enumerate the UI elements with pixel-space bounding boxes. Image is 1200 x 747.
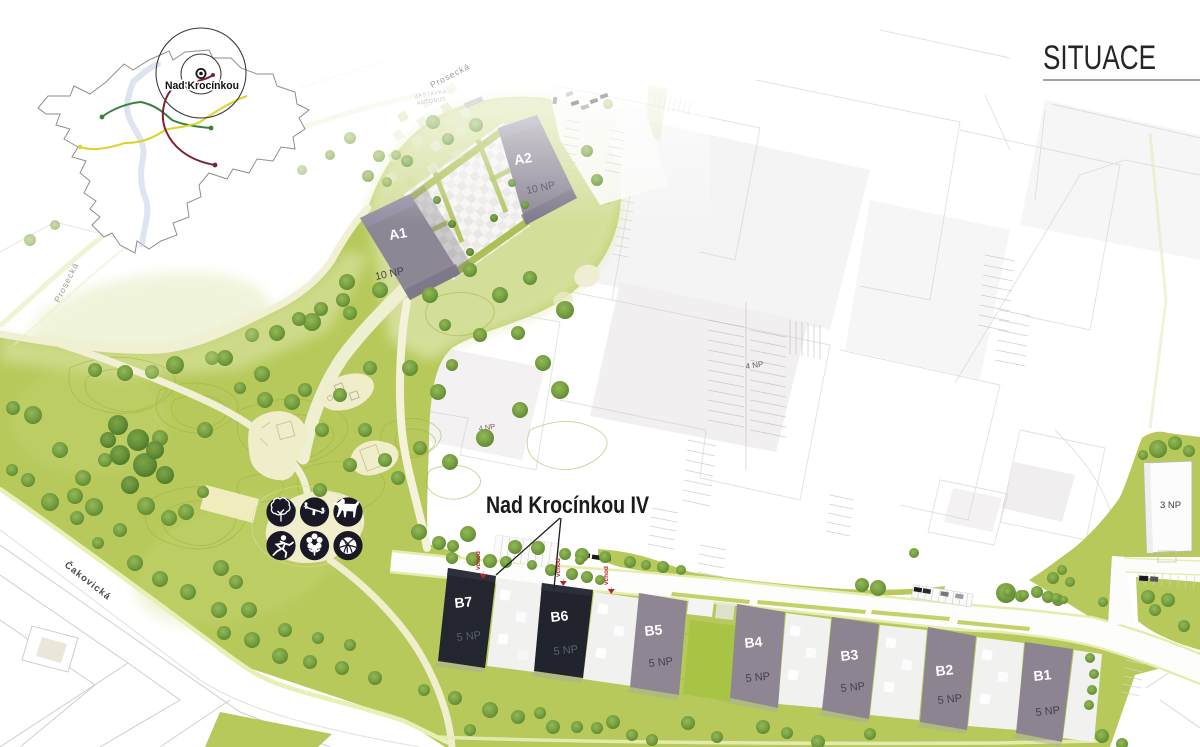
svg-text:5 NP: 5 NP xyxy=(745,670,771,684)
svg-text:B5: B5 xyxy=(644,621,664,639)
svg-text:5 NP: 5 NP xyxy=(1035,704,1061,718)
svg-text:A1: A1 xyxy=(388,224,409,243)
svg-text:5 NP: 5 NP xyxy=(937,692,963,706)
svg-text:vchod: vchod xyxy=(475,551,482,570)
svg-text:5 NP: 5 NP xyxy=(648,655,674,669)
svg-text:B6: B6 xyxy=(550,607,570,625)
svg-text:B2: B2 xyxy=(935,661,955,679)
svg-text:vchod: vchod xyxy=(555,558,562,577)
svg-text:Nad Krocínkou: Nad Krocínkou xyxy=(165,80,239,92)
svg-text:3 NP: 3 NP xyxy=(1160,500,1181,511)
svg-text:B7: B7 xyxy=(454,593,474,611)
svg-text:SITUACE: SITUACE xyxy=(1043,39,1156,77)
svg-text:5 NP: 5 NP xyxy=(456,629,482,643)
svg-text:B3: B3 xyxy=(840,646,860,664)
svg-text:Nad Krocínkou IV: Nad Krocínkou IV xyxy=(486,492,650,519)
svg-text:B4: B4 xyxy=(744,633,764,651)
svg-text:B1: B1 xyxy=(1033,666,1053,684)
svg-text:5 NP: 5 NP xyxy=(553,643,579,657)
svg-text:vchod: vchod xyxy=(603,566,610,585)
svg-text:5 NP: 5 NP xyxy=(840,680,866,694)
